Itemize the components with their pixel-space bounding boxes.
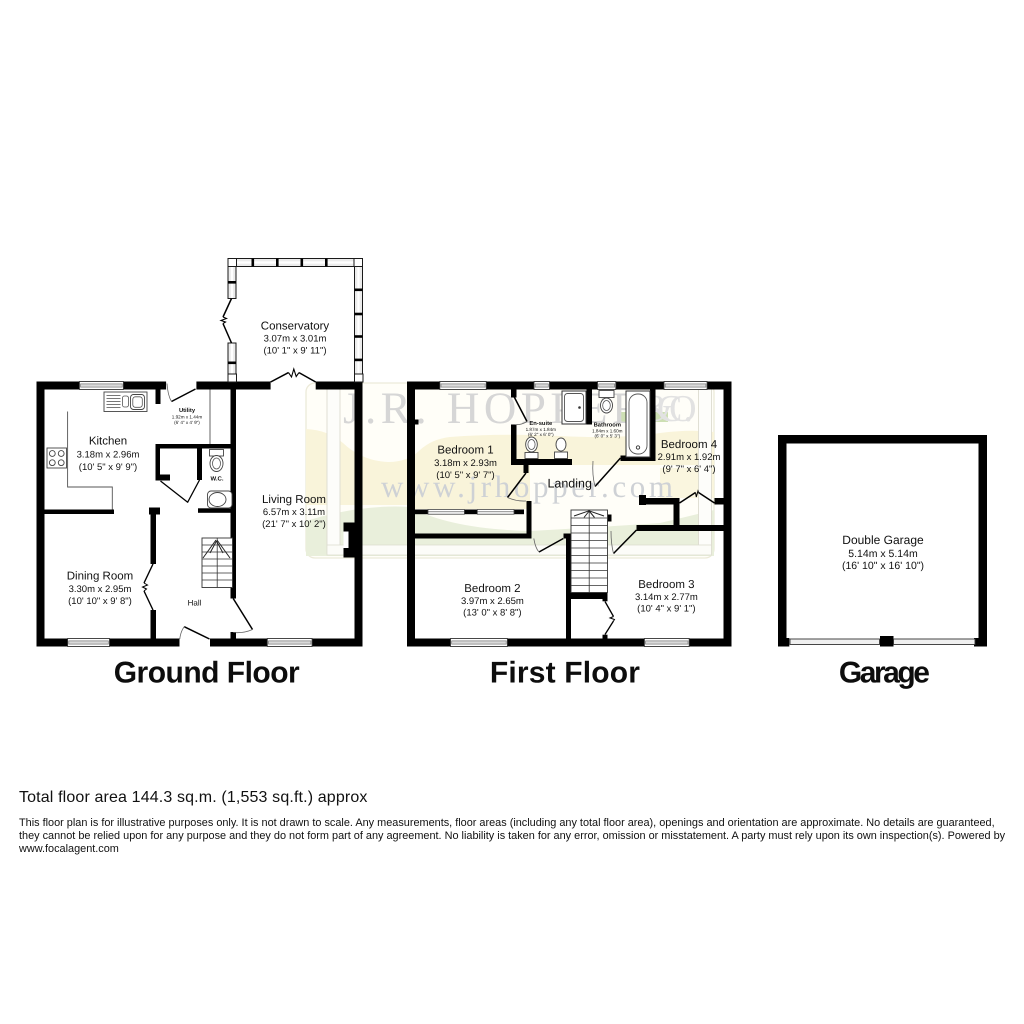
- svg-text:6.57m x 3.11m: 6.57m x 3.11m: [263, 507, 325, 518]
- svg-text:Bedroom 1: Bedroom 1: [437, 445, 493, 457]
- svg-text:5.14m x 5.14m: 5.14m x 5.14m: [848, 548, 918, 560]
- svg-text:Double Garage: Double Garage: [842, 533, 924, 547]
- svg-text:(16' 10" x 16' 10"): (16' 10" x 16' 10"): [842, 560, 924, 572]
- svg-text:3.18m x 2.96m: 3.18m x 2.96m: [77, 450, 140, 461]
- svg-text:Garage: Garage: [839, 656, 930, 689]
- svg-text:2.91m x 1.92m: 2.91m x 1.92m: [658, 452, 721, 463]
- svg-text:Landing: Landing: [547, 477, 592, 491]
- svg-text:(9' 7" x 6' 4"): (9' 7" x 6' 4"): [662, 464, 715, 475]
- svg-text:1.92m x 1.44m: 1.92m x 1.44m: [172, 414, 203, 419]
- svg-text:Living Room: Living Room: [262, 494, 326, 506]
- svg-text:3.97m x 2.65m: 3.97m x 2.65m: [461, 596, 524, 607]
- svg-text:Bedroom 2: Bedroom 2: [464, 583, 520, 595]
- svg-text:3.18m x 2.93m: 3.18m x 2.93m: [434, 458, 497, 469]
- svg-text:1.84m x 1.60m: 1.84m x 1.60m: [592, 428, 623, 433]
- svg-text:(6' 0" x 5' 3"): (6' 0" x 5' 3"): [594, 434, 620, 439]
- svg-text:Hall: Hall: [188, 599, 202, 608]
- svg-text:(21' 7" x 10' 2"): (21' 7" x 10' 2"): [262, 519, 326, 530]
- svg-text:3.30m x 2.95m: 3.30m x 2.95m: [69, 584, 132, 595]
- svg-text:(13' 0" x 8' 8"): (13' 0" x 8' 8"): [463, 608, 521, 619]
- svg-text:First Floor: First Floor: [490, 656, 640, 689]
- svg-text:Bedroom 4: Bedroom 4: [661, 439, 718, 451]
- svg-text:3.07m x 3.01m: 3.07m x 3.01m: [264, 334, 327, 345]
- svg-text:(10' 5" x 9' 7"): (10' 5" x 9' 7"): [436, 470, 494, 481]
- svg-text:3.14m x 2.77m: 3.14m x 2.77m: [635, 592, 698, 603]
- svg-text:Utility: Utility: [179, 407, 196, 414]
- svg-text:Bedroom 3: Bedroom 3: [638, 579, 694, 591]
- svg-text:Dining Room: Dining Room: [67, 571, 133, 583]
- svg-text:(10' 1" x 9' 11"): (10' 1" x 9' 11"): [263, 346, 326, 357]
- svg-text:Conservatory: Conservatory: [261, 321, 330, 333]
- svg-text:1.87m x 1.84m: 1.87m x 1.84m: [526, 427, 557, 432]
- svg-text:Ground Floor: Ground Floor: [114, 656, 300, 689]
- svg-text:www.jrhopper.com: www.jrhopper.com: [381, 469, 673, 504]
- svg-text:(6' 2" x 6' 0"): (6' 2" x 6' 0"): [528, 432, 554, 437]
- svg-text:W.C.: W.C.: [211, 476, 224, 483]
- svg-text:Kitchen: Kitchen: [89, 436, 127, 448]
- svg-text:(10' 4" x 9' 1"): (10' 4" x 9' 1"): [637, 604, 695, 615]
- svg-text:(10' 5" x 9' 9"): (10' 5" x 9' 9"): [79, 462, 137, 473]
- svg-text:(6' 4" x 4' 9"): (6' 4" x 4' 9"): [174, 420, 200, 425]
- svg-text:(10' 10" x 9' 8"): (10' 10" x 9' 8"): [68, 596, 132, 607]
